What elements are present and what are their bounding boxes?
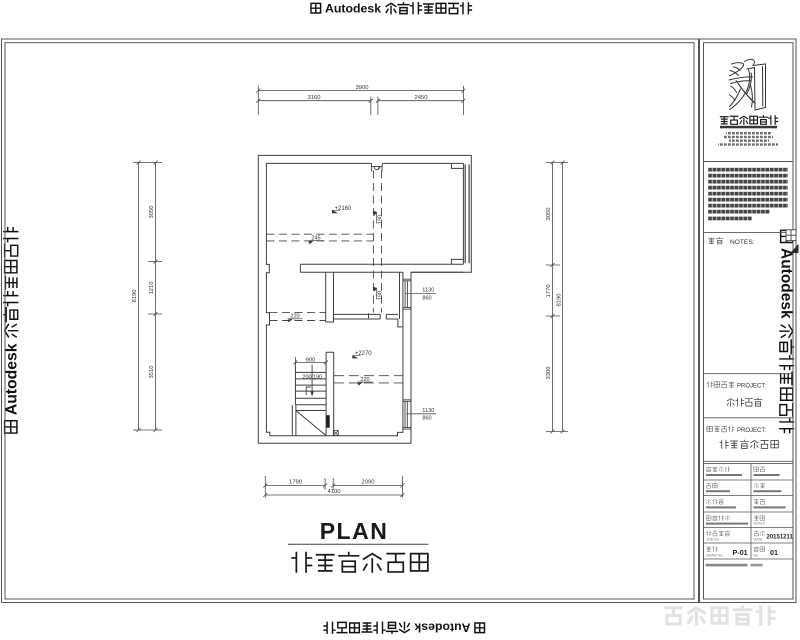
svg-text:PLAN: PLAN — [320, 518, 389, 544]
svg-text:DATE: DATE — [754, 538, 764, 542]
svg-text:8190: 8190 — [132, 290, 138, 303]
svg-text:3510: 3510 — [149, 366, 155, 379]
svg-text:PROJECT:: PROJECT: — [737, 428, 766, 434]
svg-text:20151211: 20151211 — [767, 535, 794, 541]
svg-text:+2160: +2160 — [335, 206, 353, 212]
svg-text:1210: 1210 — [149, 282, 155, 295]
svg-text:4100: 4100 — [328, 489, 341, 495]
svg-text:3160: 3160 — [308, 95, 321, 101]
svg-text:01: 01 — [770, 548, 778, 557]
svg-text:3050: 3050 — [149, 206, 155, 219]
svg-text:900: 900 — [306, 357, 316, 363]
svg-text:+2270: +2270 — [355, 351, 373, 357]
svg-text:190: 190 — [377, 215, 383, 224]
svg-text:1130: 1130 — [422, 408, 434, 414]
svg-text:JOB No: JOB No — [706, 538, 719, 542]
svg-text:200: 200 — [302, 375, 311, 381]
svg-text:1770: 1770 — [546, 285, 552, 298]
svg-text:860: 860 — [422, 416, 431, 422]
svg-text:3050: 3050 — [546, 208, 552, 221]
svg-text:2090: 2090 — [362, 480, 375, 486]
svg-text:NOTES:: NOTES: — [730, 239, 755, 246]
svg-text:No: No — [754, 553, 759, 557]
svg-text:860: 860 — [422, 295, 431, 301]
svg-text:2450: 2450 — [415, 95, 428, 101]
svg-text:1130: 1130 — [422, 288, 434, 294]
svg-text:PROJECT:: PROJECT: — [737, 384, 766, 390]
svg-text:3300: 3300 — [546, 367, 552, 380]
svg-text:P-01: P-01 — [733, 548, 748, 557]
svg-text:190: 190 — [313, 375, 322, 381]
svg-text:190: 190 — [377, 291, 383, 300]
svg-text:3900: 3900 — [356, 85, 369, 91]
svg-text:SCALE: SCALE — [754, 522, 766, 526]
svg-text:DRAW No: DRAW No — [706, 553, 722, 557]
svg-text:8190: 8190 — [556, 294, 562, 307]
svg-text:1790: 1790 — [289, 480, 302, 486]
